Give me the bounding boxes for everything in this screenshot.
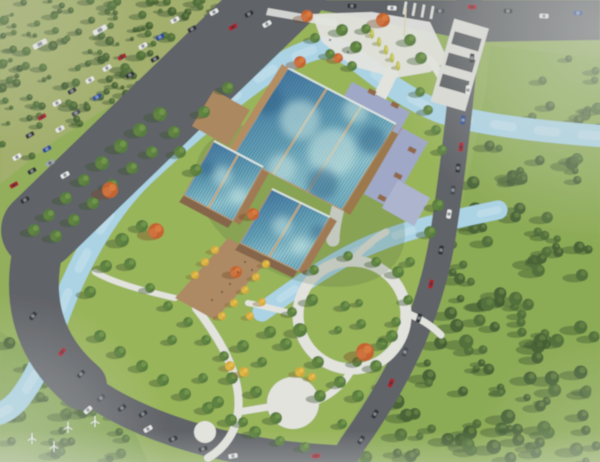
aerial-site-rendering <box>0 0 600 462</box>
rendering-canvas <box>0 0 600 462</box>
overall-wash <box>0 0 600 462</box>
atmospheric-haze <box>0 0 600 462</box>
